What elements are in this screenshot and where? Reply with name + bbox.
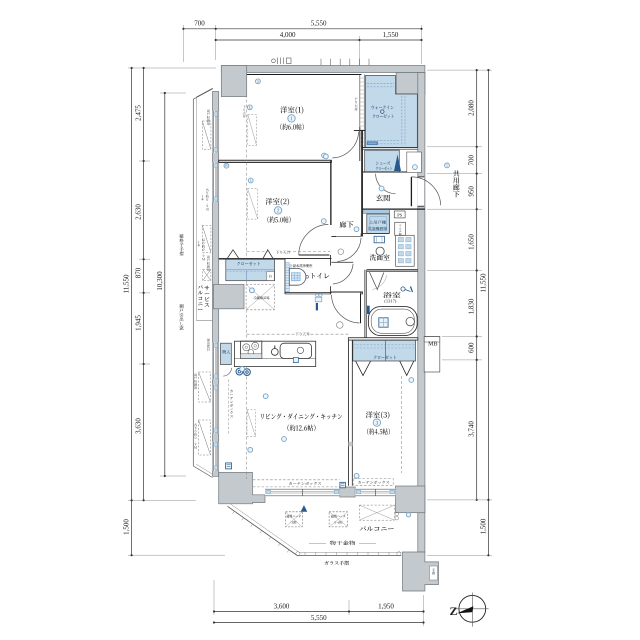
svg-text:2,630: 2,630: [135, 204, 143, 220]
svg-text:5,550: 5,550: [311, 20, 327, 28]
svg-text:5,550: 5,550: [311, 614, 327, 622]
svg-text:870: 870: [135, 267, 143, 278]
svg-text:600: 600: [468, 342, 476, 353]
svg-text:1,650: 1,650: [468, 234, 476, 250]
svg-text:11,550: 11,550: [123, 274, 131, 293]
svg-text:700: 700: [468, 154, 476, 165]
svg-text:700: 700: [194, 20, 205, 28]
svg-text:Z: Z: [449, 604, 457, 618]
svg-text:1,500: 1,500: [479, 518, 487, 534]
svg-text:3,600: 3,600: [274, 603, 290, 611]
svg-text:MB: MB: [428, 342, 437, 348]
svg-text:3,630: 3,630: [135, 418, 143, 434]
svg-text:3,740: 3,740: [468, 421, 476, 437]
svg-text:950: 950: [468, 186, 476, 197]
svg-text:1,950: 1,950: [378, 603, 394, 611]
svg-text:1,945: 1,945: [135, 315, 143, 331]
svg-text:(1317): (1317): [384, 299, 396, 304]
svg-text:1,550: 1,550: [383, 31, 399, 39]
svg-text:2,080: 2,080: [468, 100, 476, 116]
svg-text:1,830: 1,830: [468, 298, 476, 314]
svg-text:10,300: 10,300: [156, 271, 164, 291]
svg-text:2,475: 2,475: [135, 105, 143, 121]
svg-text:11,550: 11,550: [479, 273, 487, 292]
svg-text:4,000: 4,000: [280, 31, 296, 39]
svg-text:PS: PS: [397, 213, 403, 218]
svg-text:1,500: 1,500: [123, 519, 131, 535]
